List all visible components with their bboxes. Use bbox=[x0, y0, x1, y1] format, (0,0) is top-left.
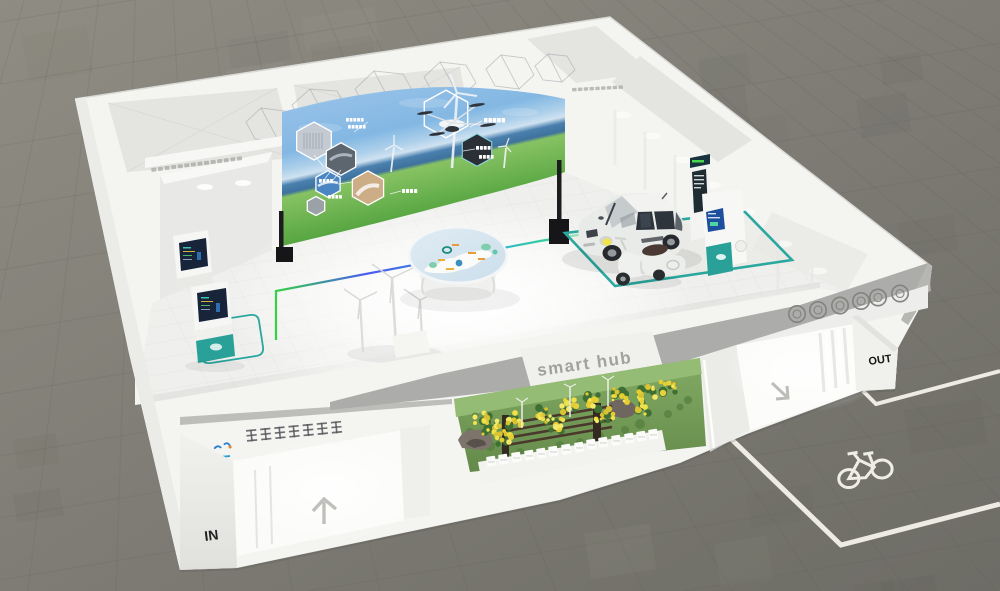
svg-text:IN: IN bbox=[203, 526, 219, 544]
